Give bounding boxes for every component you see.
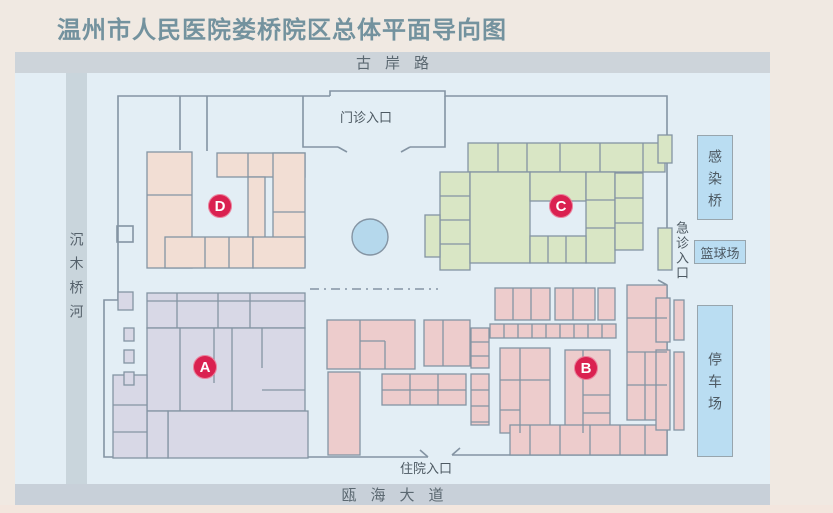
building-b-badge: B	[574, 356, 598, 380]
building-a-badge: A	[193, 355, 217, 379]
outpatient-entrance-label: 门诊入口	[340, 107, 392, 126]
pond	[352, 219, 388, 255]
inpatient-entrance-label: 住院入口	[400, 458, 452, 477]
basketball-court-box: 篮球场	[694, 240, 746, 264]
building-b-footprint	[327, 285, 684, 455]
wayfinding-map-page: 温州市人民医院娄桥院区总体平面导向图 古岸路 瓯海大道 沉木桥河	[0, 0, 833, 513]
infection-bridge-label: 感染桥	[705, 141, 725, 215]
infection-bridge-box: 感染桥	[697, 135, 733, 220]
parking-lot-label: 停车场	[705, 344, 725, 418]
parking-lot-box: 停车场	[697, 305, 733, 457]
basketball-court-label: 篮球场	[700, 243, 739, 262]
building-c-badge: C	[549, 194, 573, 218]
emergency-entrance-label: 急诊入口	[672, 221, 691, 297]
building-d-badge: D	[208, 194, 232, 218]
